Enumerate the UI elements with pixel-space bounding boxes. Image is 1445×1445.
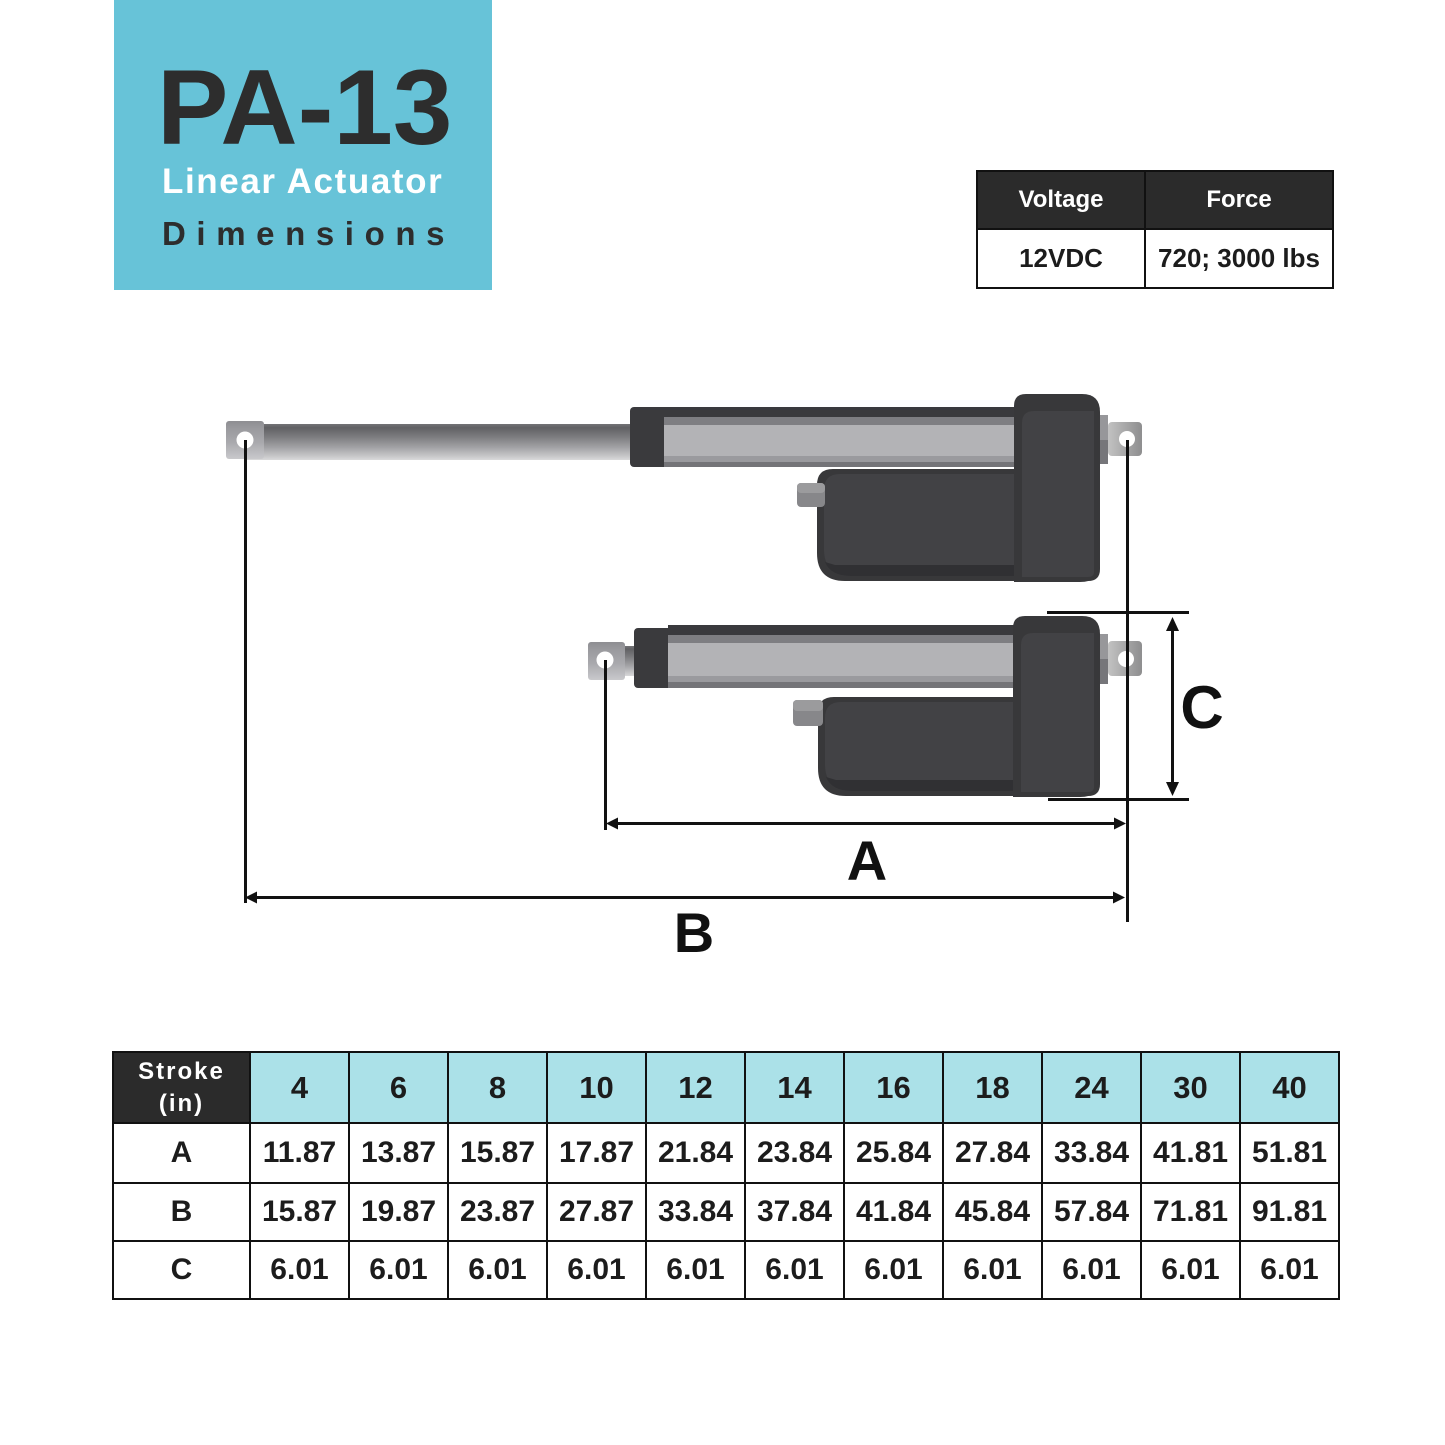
svg-text:A: A	[847, 829, 887, 892]
svg-text:B: B	[674, 901, 714, 964]
svg-text:C: C	[1180, 674, 1223, 741]
